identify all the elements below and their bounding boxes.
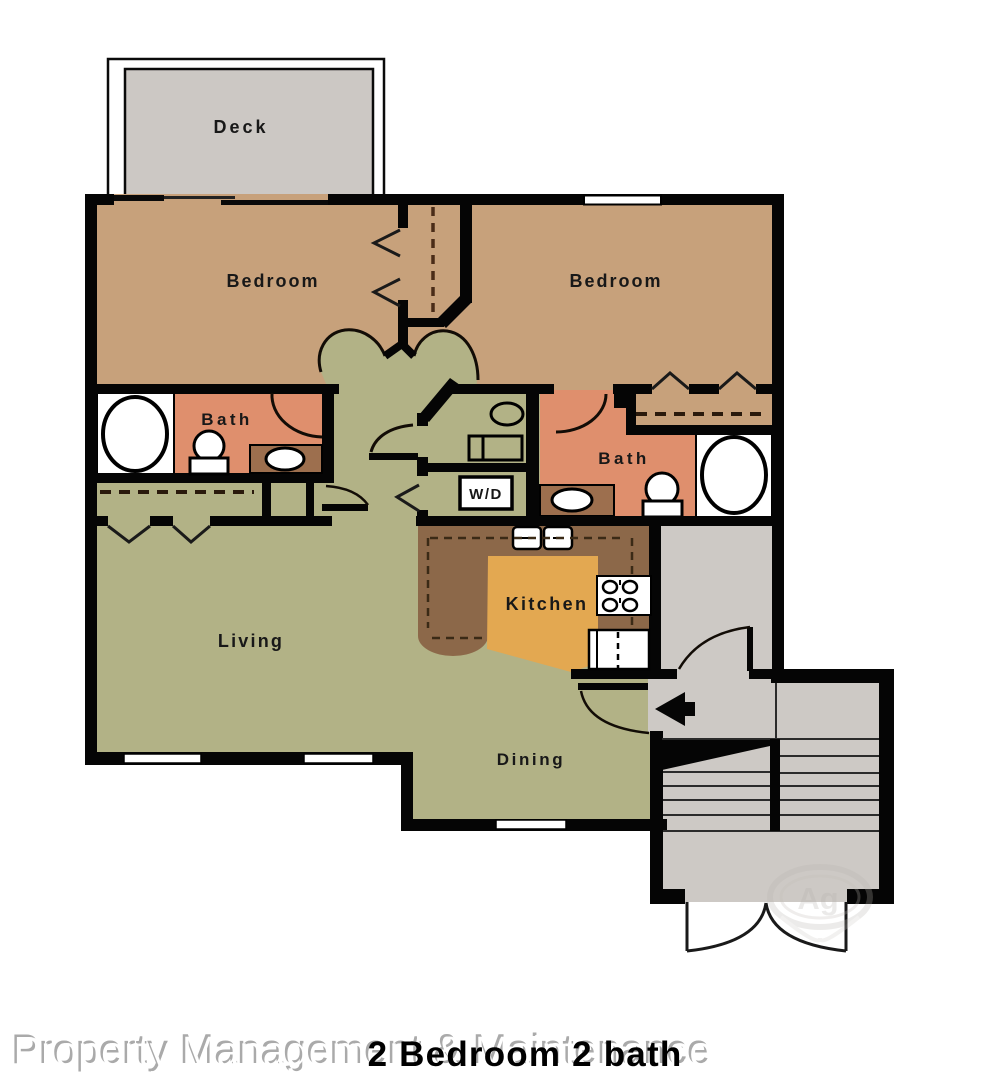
svg-text:Dining: Dining [497,750,565,769]
svg-text:Ag: Ag [797,881,838,916]
svg-text:Bath: Bath [598,449,649,468]
svg-text:Bedroom: Bedroom [569,271,662,291]
svg-text:Bath: Bath [201,410,252,429]
svg-text:Deck: Deck [213,117,268,137]
svg-text:Kitchen: Kitchen [506,594,589,614]
svg-text:Living: Living [218,631,284,651]
svg-text:2 Bedroom 2 bath: 2 Bedroom 2 bath [368,1035,683,1074]
svg-text:W/D: W/D [469,486,503,503]
svg-text:Bedroom: Bedroom [226,271,319,291]
